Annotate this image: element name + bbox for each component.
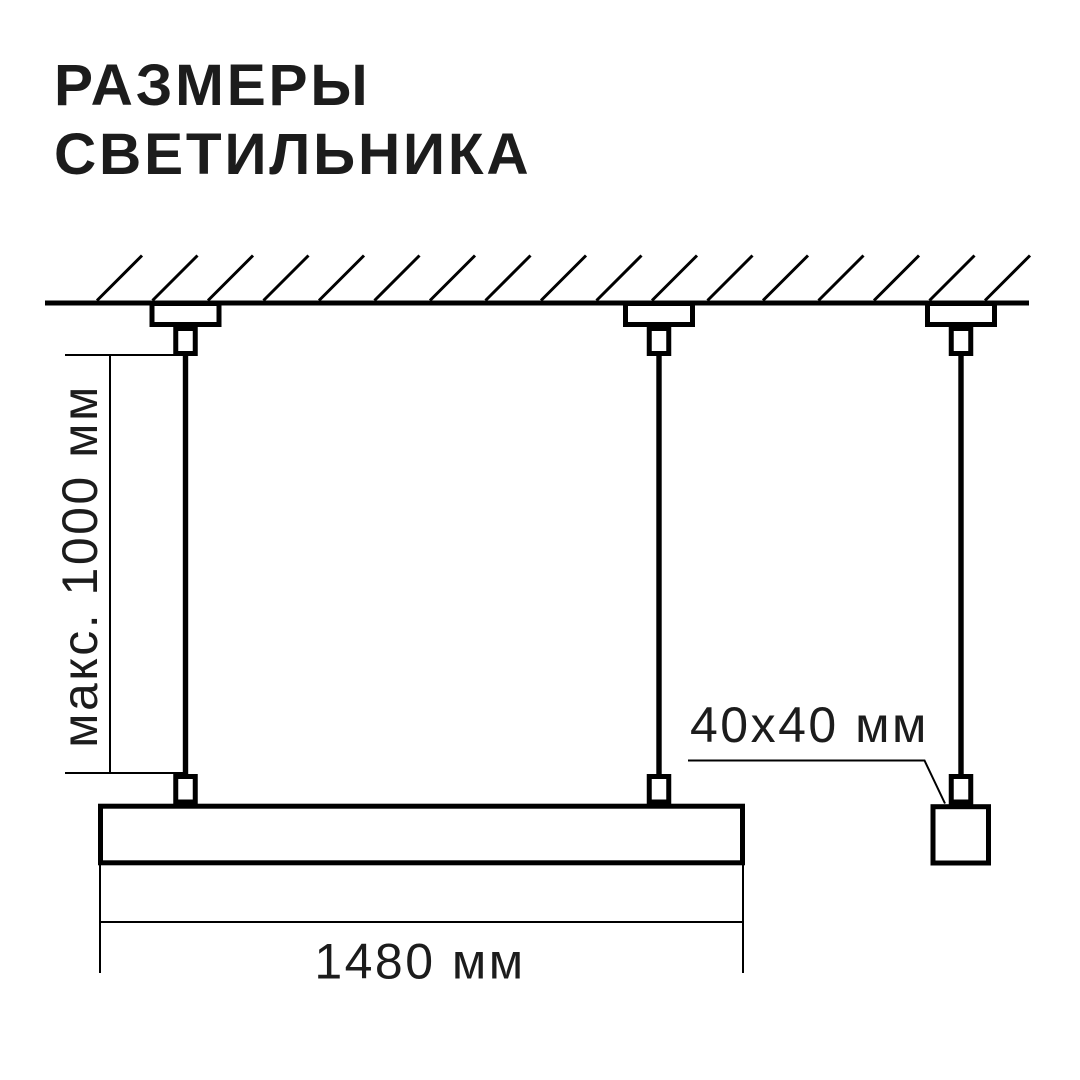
svg-text:40x40 мм: 40x40 мм: [690, 697, 929, 753]
svg-text:1480 мм: 1480 мм: [314, 934, 525, 990]
svg-text:макс. 1000 мм: макс. 1000 мм: [52, 384, 108, 748]
